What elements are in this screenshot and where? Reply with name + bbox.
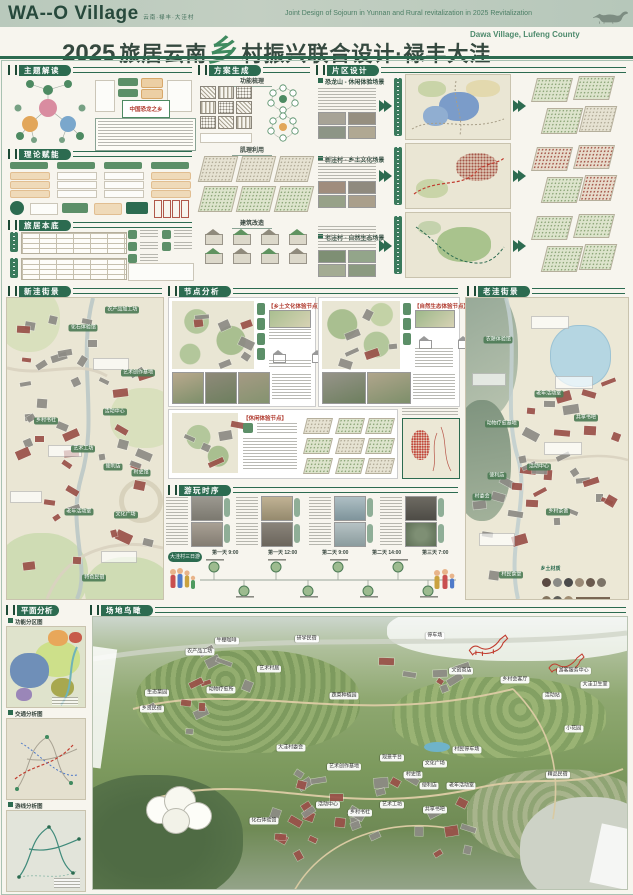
map-label: 精品民宿 [546, 771, 570, 778]
building-icon [205, 253, 223, 264]
material-swatch [542, 578, 551, 587]
map-label: 文化广场 [114, 511, 138, 518]
timeline-photo-row1 [166, 496, 458, 520]
building-icon [261, 234, 279, 245]
map-label: 化石体验馆 [249, 818, 278, 825]
map-label: 观景平台 [380, 755, 404, 762]
timeline-time-2: 第一天 12:00 [268, 549, 297, 556]
base-table2 [21, 258, 127, 280]
district-row2-map [405, 143, 511, 209]
district-row2-render [530, 143, 616, 207]
section-title: 主题解读 [19, 65, 71, 76]
map-label: 村史馆 [404, 771, 423, 778]
map-label: 村委会 [473, 493, 492, 500]
scheme-building-icons [200, 228, 312, 280]
section-theory: 理论赋能 [8, 148, 192, 160]
timeline-time-4: 第二天 14:00 [372, 549, 401, 556]
dinosaur-logo-icon [592, 8, 628, 24]
base-icon-list [128, 230, 192, 260]
plan-map3-title: 游线分析图 [8, 802, 43, 810]
map-building [365, 348, 381, 360]
material-title: 乡土材质 [541, 566, 561, 572]
map-label: 研学民宿 [295, 635, 319, 642]
map-label: 老年活动室 [447, 782, 476, 789]
map-label: 艺术工坊 [380, 801, 404, 808]
map-building [219, 358, 232, 368]
section-new-street: 新洼街景 [8, 285, 162, 297]
node-panel2-title: 【自然生态体验节点】 [414, 302, 469, 310]
route-label: 大洼村三日游 [168, 552, 202, 562]
map-label: 艺术工坊 [71, 445, 95, 452]
district-row1-tab [394, 78, 402, 136]
title-part2: 村振兴联合设计·禄丰大洼 [241, 43, 491, 66]
map-building [195, 314, 209, 319]
title-year: 2025 [62, 40, 115, 67]
plan-map3-legend [54, 878, 80, 888]
scheme-function-grids [200, 86, 252, 130]
map-label: 停车场 [425, 633, 444, 640]
building-icon [261, 253, 279, 264]
building-icon [205, 234, 223, 245]
map-label: 乡村书社 [34, 418, 58, 425]
district-row3-render [530, 212, 616, 276]
scheme-bubble-network [255, 84, 311, 142]
material-photo [576, 597, 610, 600]
map-label: 共享书吧 [423, 807, 447, 814]
district-row3-thumbs [318, 250, 376, 276]
map-building [338, 358, 353, 370]
plan-map2 [6, 718, 86, 800]
building-icon [289, 253, 307, 264]
map-label: 艺术创作基地 [327, 763, 361, 770]
map-label: 村民停车场 [452, 747, 481, 754]
map-label: 特色民宿 [82, 574, 106, 581]
map-label: 活动中心 [103, 409, 127, 416]
header-english-line1: Joint Design of Sojourn in Yunnan and Ru… [285, 10, 532, 17]
map-label: 乡贤民宿 [140, 706, 164, 713]
tourist-family-left [168, 566, 198, 596]
map-label: 小花园 [564, 725, 583, 732]
node-panel1-title: 【乡土文化体验节点】 [268, 302, 323, 310]
map-label: 乡村书社 [348, 809, 372, 816]
map-building [345, 348, 360, 358]
map-label: 蔬菜种植园 [329, 692, 358, 699]
tourist-family-right [432, 568, 458, 596]
theme-paragraph [95, 118, 196, 151]
map-label: 生态菜园 [145, 690, 169, 697]
node-panel1: 【乡土文化体验节点】 [168, 297, 316, 407]
section-plan: 平面分析 [6, 604, 86, 616]
node-panel3: 【休闲体验节点】 [168, 409, 398, 479]
map-building [201, 442, 211, 451]
plan-map1-title: 功能分区图 [8, 618, 43, 626]
node-panel1-plan [172, 301, 254, 369]
aerial-label-layer: 农产品工坊牛棚咖啡研学民宿艺术村居生态菜园动物疗愈所乡贤民宿蔬菜种植园停车场文创… [93, 617, 627, 889]
map-label: 老年活动室 [534, 391, 563, 398]
map-label: 乡村茶舍 [546, 508, 570, 515]
district-row3-tab [394, 216, 402, 274]
map-label: 农产品加工坊 [105, 307, 139, 314]
scheme-legend [200, 133, 252, 143]
district-row3-map [405, 212, 511, 278]
header-english-line2: Dawa Village, Lufeng County [470, 30, 580, 39]
map-label: 动物疗愈所 [207, 687, 236, 694]
node-panel2-plan [322, 301, 400, 369]
theme-highlight-box: 中国恐龙之乡 [122, 100, 170, 118]
map-label: 活动站 [543, 692, 562, 699]
theory-flow [10, 200, 190, 216]
timeline-time-1: 第一天 9:00 [212, 549, 238, 556]
map-building [184, 434, 196, 443]
map-label: 共享书吧 [574, 415, 598, 422]
building-icon [289, 234, 307, 245]
map-label: 农产品工坊 [185, 649, 214, 656]
plan-map1 [6, 626, 86, 708]
building-icon [233, 234, 251, 245]
map-building [362, 309, 374, 321]
section-icon [8, 65, 17, 75]
map-label: 游客服务中心 [557, 668, 591, 675]
timeline-time-5: 第三天 7:00 [422, 549, 448, 556]
node-panel3-plan [172, 413, 238, 473]
node-panel3-title: 【休闲体验节点】 [243, 414, 287, 422]
base-row1-tab [10, 232, 18, 252]
map-building [240, 319, 252, 329]
theme-list-box [95, 80, 115, 112]
map-label: 活动中心 [316, 801, 340, 808]
map-building [208, 457, 224, 468]
district-row1-render [530, 74, 616, 138]
map-building [241, 351, 251, 361]
theme-tag-grid [118, 78, 162, 98]
map-label: 农耕体验馆 [484, 337, 513, 344]
poster: WA--O Village 云南·禄丰·大洼村 Joint Design of … [0, 0, 633, 895]
theme-bubble-diagram [10, 78, 92, 144]
map-label: 大洼卫生室 [580, 682, 609, 689]
map-label: 村民食堂 [499, 571, 523, 578]
district-row2-thumbs [318, 181, 376, 207]
theme-highlight-text: 中国恐龙之乡 [129, 105, 162, 113]
base-row2-tab [10, 258, 18, 278]
map-label: 化石体验馆 [69, 325, 98, 332]
map-building [218, 319, 232, 332]
map-label: 活动中心 [527, 463, 551, 470]
arrow-icon [379, 100, 389, 112]
arrow-icon [379, 170, 389, 182]
section-theme: 主题解读 [8, 64, 192, 76]
scheme-sub2: 肌理利用 [232, 145, 272, 156]
section-node: 节点分析 [168, 285, 458, 297]
section-old-street: 老洼街景 [467, 285, 625, 297]
theory-matrix [10, 162, 190, 196]
map-label: 艺术村居 [257, 665, 281, 672]
map-building [238, 336, 255, 350]
map-label: 动物疗愈基地 [485, 421, 519, 428]
map-label: 文创商店 [449, 668, 473, 675]
map-label: 艺术创作基地 [121, 370, 155, 377]
section-rule [73, 67, 192, 73]
map-label: 大洼村委会 [276, 744, 305, 751]
map-label: 文化广场 [423, 760, 447, 767]
district-row1-map [405, 74, 511, 140]
district-row1-thumbs [318, 112, 376, 138]
theme-list-box2 [167, 80, 192, 112]
arrow-icon [513, 240, 523, 252]
header-divider [0, 56, 633, 59]
logo-subtitle: 云南·禄丰·大洼村 [143, 15, 194, 21]
new-street-map: 农产品加工坊化石体验馆艺术创作基地乡村书社活动中心艺术工坊便利店村史馆老年活动室… [6, 297, 164, 600]
aerial-view: 农产品工坊牛棚咖啡研学民宿艺术村居生态菜园动物疗愈所乡贤民宿蔬菜种植园停车场文创… [92, 616, 628, 890]
arrow-icon [379, 240, 389, 252]
logo-text: WA--O Village [8, 3, 139, 24]
building-icon [233, 253, 251, 264]
district-row2-tab [394, 147, 402, 205]
plan-map2-title: 交通分析图 [8, 710, 43, 718]
node-panel2: 【自然生态体验节点】 [318, 297, 460, 407]
section-timeline: 游玩时序 [168, 484, 458, 496]
old-street-map: 农耕体验馆老年活动室共享书吧动物疗愈基地活动中心便利店村委会乡村茶舍村民食堂 乡… [465, 297, 629, 600]
map-label: 老年活动室 [64, 508, 93, 515]
timeline-network [200, 558, 456, 598]
arrow-icon [513, 100, 523, 112]
node-keymap [402, 418, 460, 479]
map-label: 乡村会客厅 [500, 676, 529, 683]
plan-map1-legend [52, 697, 78, 705]
section-aerial: 场地鸟瞰 [90, 604, 626, 616]
map-label: 牛棚咖啡 [214, 638, 238, 645]
map-label: 便利店 [420, 782, 439, 789]
scheme-texture-tiles [199, 156, 313, 214]
timeline-photo-row2 [166, 522, 458, 546]
base-table1 [21, 232, 127, 254]
map-building [218, 430, 233, 441]
plan-map3 [6, 810, 86, 892]
base-note [128, 263, 194, 281]
section-scheme: 方案生成 [198, 64, 310, 76]
map-building [389, 344, 397, 350]
map-label: 村史馆 [132, 469, 151, 476]
logo: WA--O Village 云南·禄丰·大洼村 [8, 3, 194, 25]
title-part1: 旅居云南 [119, 43, 207, 66]
map-label: 便利店 [104, 463, 123, 470]
map-label: 便利店 [487, 472, 506, 479]
material-palette: 乡土材质 [541, 557, 625, 596]
arrow-icon [513, 170, 523, 182]
new-street-label-layer: 农产品加工坊化石体验馆艺术创作基地乡村书社活动中心艺术工坊便利店村史馆老年活动室… [7, 298, 163, 599]
map-building [344, 329, 361, 341]
timeline-time-3: 第二天 9:00 [322, 549, 348, 556]
